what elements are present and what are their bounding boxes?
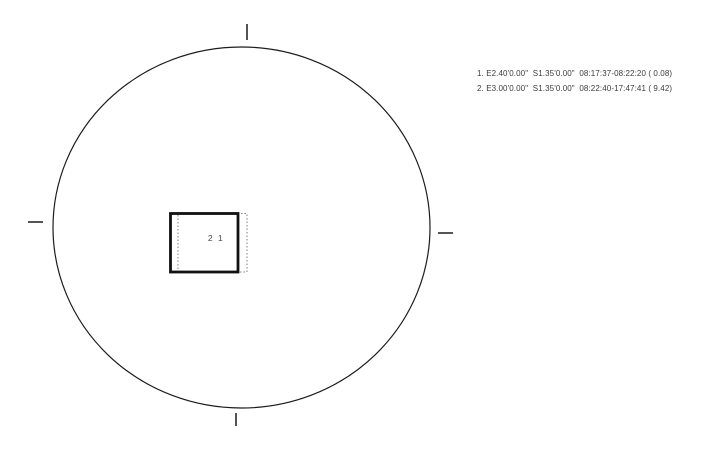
legend-entry-2: 2. E3.00'0.00" S1.35'0.00" 08:22:40-17:4… [477,81,672,96]
shading-diagram-canvas: 2 1 1. E2.40'0.00" S1.35'0.00" 08:17:37-… [0,0,714,457]
horizon-circle [53,47,430,408]
window-position-label: 2 1 [196,233,236,243]
legend-entry-1: 1. E2.40'0.00" S1.35'0.00" 08:17:37-08:2… [477,66,672,81]
legend: 1. E2.40'0.00" S1.35'0.00" 08:17:37-08:2… [477,66,672,96]
